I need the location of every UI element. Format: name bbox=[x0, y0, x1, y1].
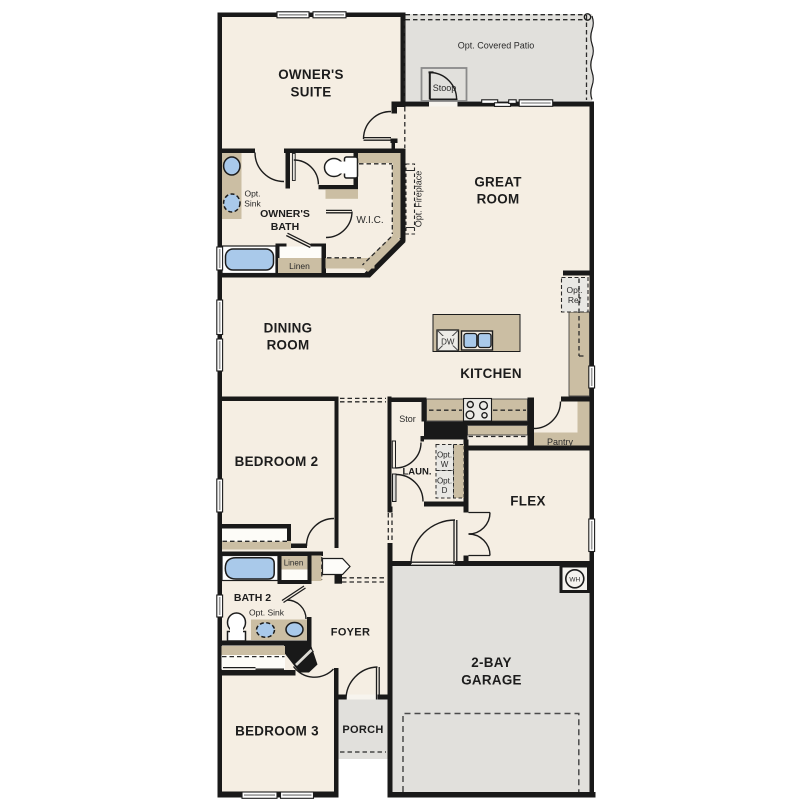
svg-text:FOYER: FOYER bbox=[331, 627, 370, 639]
svg-text:DINING: DINING bbox=[264, 321, 313, 336]
svg-text:Opt.: Opt. bbox=[244, 189, 260, 199]
svg-text:BEDROOM 2: BEDROOM 2 bbox=[235, 454, 319, 469]
svg-text:W: W bbox=[441, 460, 449, 469]
svg-text:2-BAY: 2-BAY bbox=[471, 655, 511, 670]
svg-text:Opt. Covered Patio: Opt. Covered Patio bbox=[458, 41, 535, 51]
svg-text:D: D bbox=[442, 486, 448, 495]
svg-text:Opt.: Opt. bbox=[437, 451, 452, 460]
svg-text:DW: DW bbox=[441, 338, 455, 347]
svg-text:Stor: Stor bbox=[399, 414, 416, 424]
svg-text:Opt.: Opt. bbox=[437, 477, 452, 486]
svg-text:BATH 2: BATH 2 bbox=[234, 592, 271, 604]
svg-text:LAUN.: LAUN. bbox=[402, 467, 431, 478]
svg-text:FLEX: FLEX bbox=[510, 494, 545, 509]
svg-text:Linen: Linen bbox=[284, 559, 304, 568]
svg-text:GARAGE: GARAGE bbox=[461, 673, 522, 688]
svg-text:Sink: Sink bbox=[244, 199, 261, 209]
svg-text:BATH: BATH bbox=[271, 221, 299, 233]
svg-text:WH: WH bbox=[569, 576, 580, 583]
svg-text:ROOM: ROOM bbox=[477, 192, 520, 207]
svg-text:PORCH: PORCH bbox=[342, 724, 383, 736]
svg-text:Opt. Sink: Opt. Sink bbox=[249, 608, 285, 618]
svg-text:Ref: Ref bbox=[568, 295, 582, 305]
svg-text:Opt. Fireplace: Opt. Fireplace bbox=[414, 171, 424, 228]
svg-text:Stoop: Stoop bbox=[433, 83, 457, 93]
svg-text:ROOM: ROOM bbox=[267, 338, 310, 353]
svg-text:KITCHEN: KITCHEN bbox=[460, 366, 522, 381]
svg-text:W.I.C.: W.I.C. bbox=[356, 215, 383, 226]
svg-text:SUITE: SUITE bbox=[291, 85, 332, 100]
svg-text:GREAT: GREAT bbox=[474, 175, 522, 190]
svg-text:Linen: Linen bbox=[289, 261, 310, 271]
svg-text:OWNER'S: OWNER'S bbox=[278, 67, 344, 82]
svg-text:Opt.: Opt. bbox=[566, 285, 582, 295]
svg-text:Pantry: Pantry bbox=[547, 437, 574, 447]
svg-text:BEDROOM 3: BEDROOM 3 bbox=[235, 724, 319, 739]
svg-text:OWNER'S: OWNER'S bbox=[260, 208, 310, 220]
